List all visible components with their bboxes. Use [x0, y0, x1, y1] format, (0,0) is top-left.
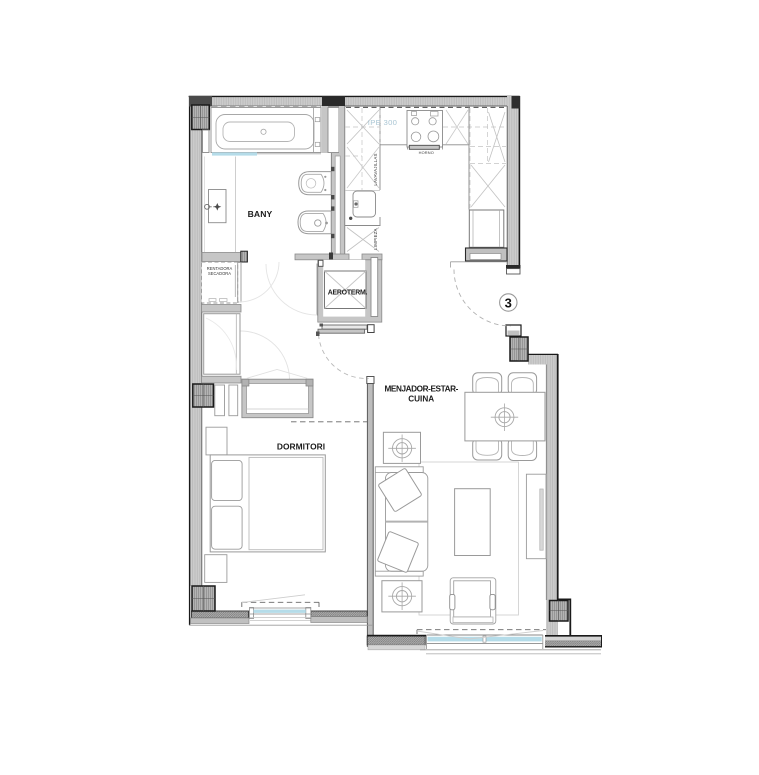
- svg-text:HORNO: HORNO: [419, 150, 434, 155]
- svg-text:IPE 300: IPE 300: [368, 118, 397, 127]
- svg-text:DORMITORI: DORMITORI: [277, 441, 325, 451]
- svg-text:MENJADOR-ESTAR-: MENJADOR-ESTAR-: [384, 384, 458, 393]
- svg-text:AEROTERM.: AEROTERM.: [328, 289, 368, 296]
- svg-text:CUINA: CUINA: [408, 395, 434, 404]
- svg-text:LIMPIEZA: LIMPIEZA: [373, 228, 378, 250]
- svg-text:LAVAVAJILLAS: LAVAVAJILLAS: [373, 153, 378, 185]
- svg-text:3: 3: [505, 295, 512, 310]
- svg-text:BANY: BANY: [248, 209, 273, 219]
- svg-text:SECADORA: SECADORA: [208, 271, 231, 276]
